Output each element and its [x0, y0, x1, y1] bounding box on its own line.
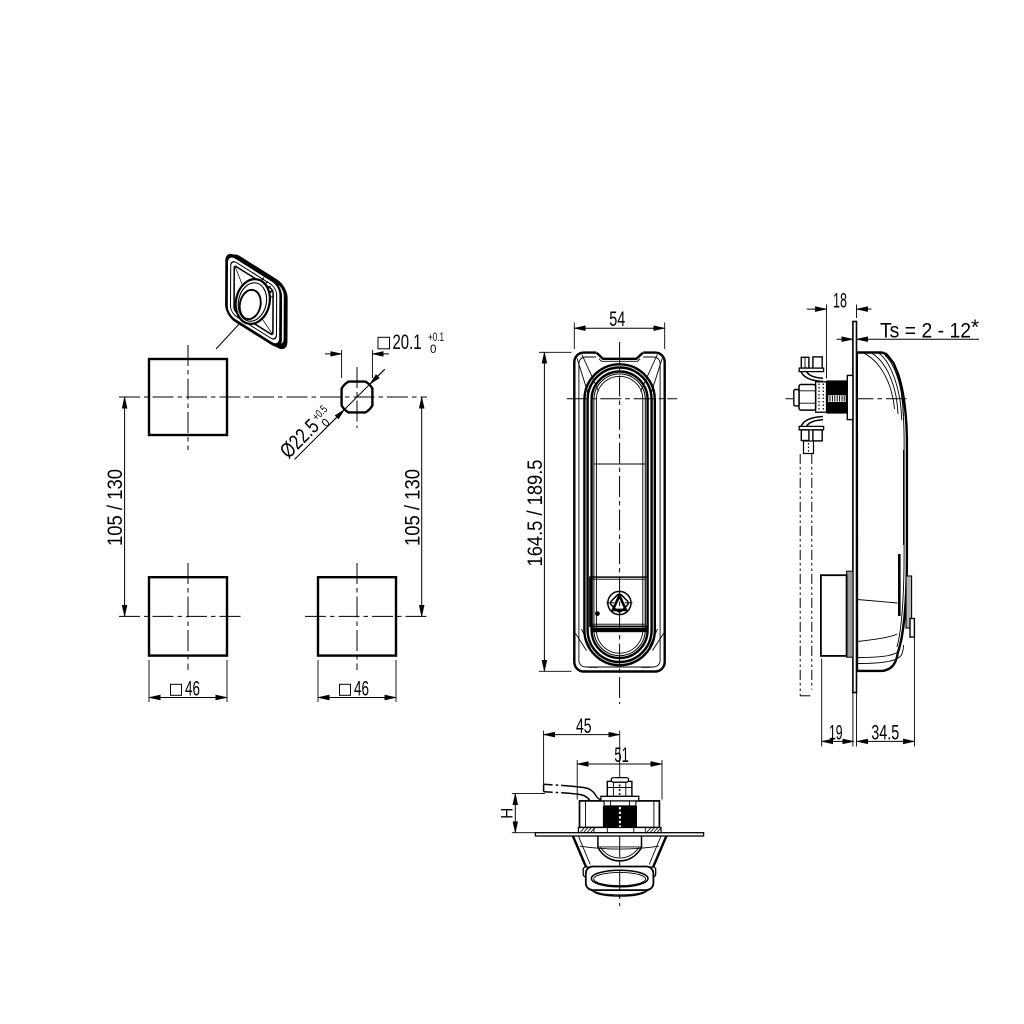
svg-text:+0.1: +0.1: [428, 332, 444, 344]
svg-text:105 / 130: 105 / 130: [104, 469, 127, 546]
svg-text:34.5: 34.5: [871, 721, 899, 744]
svg-text:45: 45: [576, 715, 592, 738]
svg-text:*: *: [971, 316, 979, 339]
svg-text:H: H: [498, 808, 516, 819]
svg-text:54: 54: [609, 308, 625, 331]
svg-text:164.5 / 189.5: 164.5 / 189.5: [524, 460, 547, 567]
svg-text:51: 51: [614, 744, 629, 767]
svg-text:0: 0: [430, 344, 436, 356]
svg-text:Ts = 2 - 12: Ts = 2 - 12: [880, 319, 971, 342]
svg-text:46: 46: [354, 677, 369, 700]
svg-text:46: 46: [185, 677, 200, 700]
svg-text:20.1: 20.1: [393, 331, 422, 354]
svg-text:105 / 130: 105 / 130: [401, 469, 424, 546]
svg-text:19: 19: [829, 721, 843, 744]
svg-text:18: 18: [833, 289, 847, 312]
